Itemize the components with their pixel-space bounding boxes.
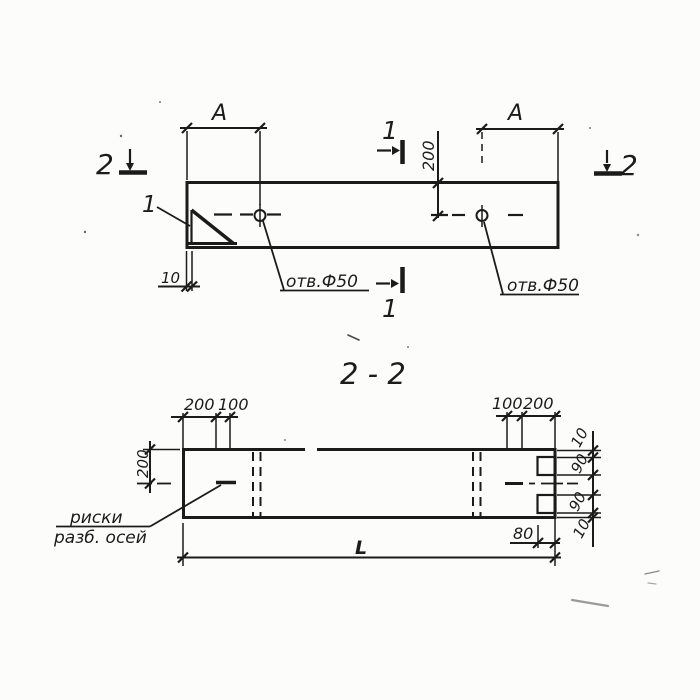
- section-cut-marker-2-left: 2: [96, 148, 147, 181]
- cut-label-2-right: 2: [620, 149, 638, 182]
- hole-note-left: отв.Ф50: [263, 221, 369, 292]
- axes-note-line2: разб. осей: [53, 528, 147, 548]
- cut-arrow-down-icon: [603, 164, 611, 172]
- dim-length-L: L: [177, 519, 561, 566]
- section-cut-marker-1-bottom: 1: [376, 267, 403, 323]
- dim-left-200-label: 200: [134, 449, 152, 478]
- plan-view: 1 A A 200: [96, 101, 638, 323]
- hole-note-right: отв.Ф50: [484, 222, 579, 296]
- end-notches: [538, 457, 556, 513]
- dim-80-label: 80: [513, 524, 533, 543]
- hidden-hole-lines: [253, 452, 481, 516]
- section-cut-marker-2-right: 2: [594, 149, 638, 182]
- dim-200-right-label: 200: [523, 394, 554, 413]
- dim-a-right: A: [476, 101, 564, 181]
- cut-label-1-top: 1: [382, 116, 398, 145]
- cut-label-2-left: 2: [96, 148, 114, 181]
- cut-label-1-bottom: 1: [382, 294, 398, 323]
- dim-a-right-label: A: [506, 101, 523, 126]
- axis-centerline: [137, 483, 578, 484]
- dims-right-chain: 10 90 90 10: [557, 425, 601, 547]
- dim-left-200: 200: [134, 441, 180, 493]
- cut-arrow-right-icon: [391, 279, 399, 288]
- dim-10-label: 10: [161, 269, 180, 287]
- scan-gap: [305, 445, 317, 453]
- technical-drawing: 1 A A 200: [0, 0, 700, 700]
- dim-200-hole-offset: 200: [419, 131, 443, 221]
- dim-100-right-label: 100: [492, 394, 523, 413]
- dims-top-right: 100 200: [492, 394, 561, 448]
- dim-a-left: A: [180, 101, 267, 205]
- detail-reference: 1: [142, 192, 190, 226]
- dim-80: 80: [510, 524, 560, 548]
- dim-200-label: 200: [419, 140, 438, 171]
- section-beam-outline: [184, 450, 556, 518]
- dim-a-left-label: A: [210, 101, 227, 126]
- section-cut-marker-1-top: 1: [377, 116, 403, 164]
- hole-note-right-label: отв.Ф50: [507, 276, 579, 296]
- cut-arrow-down-icon: [126, 163, 134, 171]
- axes-note-line1: риски: [69, 508, 123, 528]
- dim-10-chamfer: 10: [158, 251, 200, 292]
- hole-right: [431, 205, 523, 227]
- section-view: 2 - 2: [53, 357, 601, 566]
- drawing-sheet: 1 A A 200: [0, 0, 700, 700]
- dim-200-left-label: 200: [184, 395, 215, 414]
- dim-length-label: L: [355, 537, 367, 559]
- dims-top-left: 200 100: [171, 395, 249, 448]
- dim-right-10-top-label: 10: [567, 425, 592, 450]
- hole-note-left-label: отв.Ф50: [286, 272, 358, 292]
- cut-arrow-right-icon: [392, 146, 400, 155]
- detail-ref-label: 1: [142, 192, 157, 218]
- dim-right-90-bottom-label: 90: [565, 489, 590, 514]
- section-title: 2 - 2: [340, 357, 406, 391]
- dim-100-left-label: 100: [218, 395, 249, 414]
- hole-left: [214, 204, 281, 227]
